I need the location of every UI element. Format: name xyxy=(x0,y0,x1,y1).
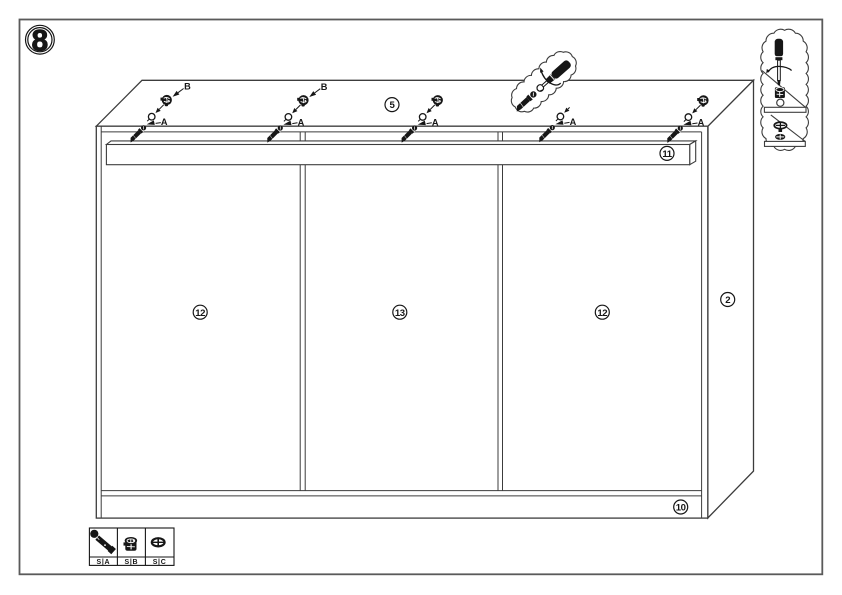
svg-text:A: A xyxy=(432,117,439,127)
svg-text:13: 13 xyxy=(395,308,405,319)
svg-text:12: 12 xyxy=(597,308,607,319)
svg-text:2: 2 xyxy=(725,295,730,306)
svg-text:8: 8 xyxy=(32,25,49,58)
svg-text:10: 10 xyxy=(676,503,686,514)
svg-text:S|B: S|B xyxy=(125,559,139,566)
svg-text:12: 12 xyxy=(195,308,205,319)
svg-text:A: A xyxy=(161,117,168,127)
svg-text:B: B xyxy=(321,82,328,92)
svg-text:A: A xyxy=(698,118,705,128)
svg-text:S|A: S|A xyxy=(97,559,111,566)
svg-text:A: A xyxy=(570,117,577,127)
svg-text:S|C: S|C xyxy=(153,559,167,566)
svg-text:B: B xyxy=(184,82,191,92)
svg-text:11: 11 xyxy=(662,149,672,160)
svg-text:A: A xyxy=(298,117,305,127)
